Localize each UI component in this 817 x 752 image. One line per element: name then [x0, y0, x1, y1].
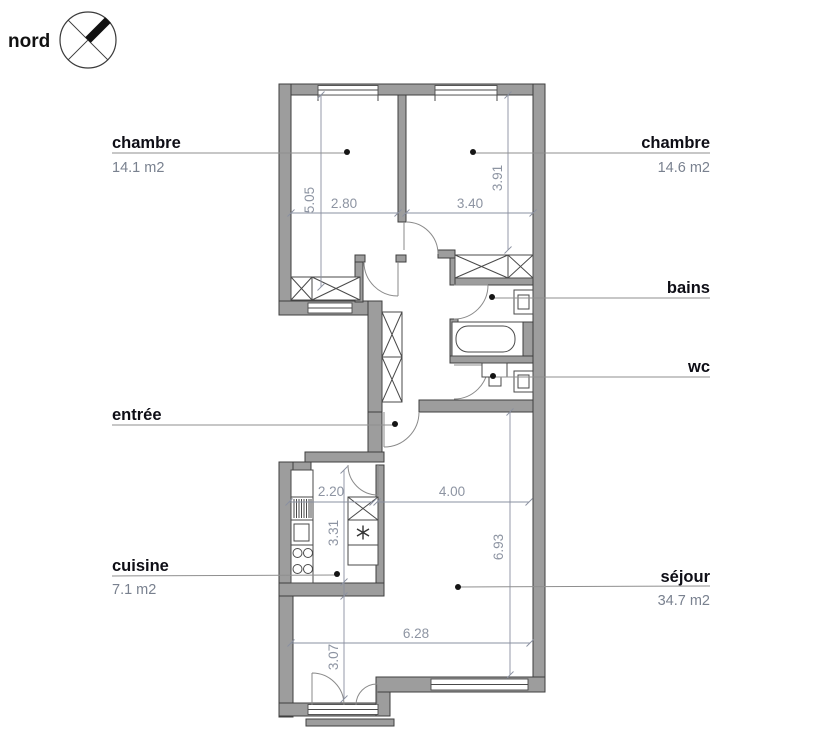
leader-dot-sejour: [455, 584, 461, 590]
door-chambre2: [404, 222, 438, 254]
room-area-cuisine: 7.1 m2: [112, 582, 156, 598]
wall-hall-west: [368, 301, 382, 412]
wall-bains-north: [455, 278, 533, 285]
wall-cuisine-south: [279, 583, 384, 596]
window-jamb-ticks: [318, 95, 497, 101]
wall-chambre1-door-jamb-east: [396, 255, 406, 262]
leader-dot-chambre2: [470, 149, 476, 155]
wardrobe-chambre2: [455, 255, 533, 278]
leader-dot-wc: [490, 373, 496, 379]
dim-cuisine-height: 3.31: [326, 520, 341, 546]
compass-north-wedge-icon: [85, 17, 111, 43]
room-name-chambre1: chambre: [112, 134, 181, 152]
door-cuisine: [348, 465, 378, 495]
wall-right: [533, 84, 545, 692]
leader-dot-entree: [392, 421, 398, 427]
dim-chambre1-height: 5.05: [302, 187, 317, 213]
door-balcony-right: [356, 684, 377, 705]
wall-chambre1-door-jamb-west: [355, 255, 365, 262]
room-name-wc: wc: [687, 358, 710, 376]
leader-dot-cuisine: [334, 571, 340, 577]
bains-sink: [514, 290, 533, 314]
dim-sejour-balcony-height: 3.07: [326, 644, 341, 670]
room-area-chambre1: 14.1 m2: [112, 160, 164, 176]
leader-sejour: [458, 586, 710, 587]
dim-chambre1-width: 2.80: [331, 196, 357, 211]
room-name-entree: entrée: [112, 406, 162, 424]
wall-left-upper: [279, 84, 291, 313]
wall-cuisine-north-upper: [305, 452, 384, 462]
room-area-chambre2: 14.6 m2: [658, 160, 710, 176]
wc-sink: [514, 371, 533, 392]
dim-entree-sejour-width: 4.00: [439, 484, 465, 499]
label-sejour: séjour 34.7 m2: [455, 568, 711, 609]
door-chambre1: [364, 262, 398, 296]
leader-dot-bains: [489, 294, 495, 300]
dim-chambre2-height: 3.91: [490, 165, 505, 191]
room-area-sejour: 34.7 m2: [658, 593, 710, 609]
dim-sejour-width: 6.28: [403, 626, 429, 641]
dim-cuisine-width: 2.20: [318, 484, 344, 499]
dimension-lines: 5.05 2.80 3.40 3.91 2.20 3.31 4.00 6.93 …: [286, 92, 537, 703]
dim-sejour-height: 6.93: [491, 534, 506, 560]
toilet-bowl: [489, 377, 501, 386]
label-entree: entrée: [112, 406, 398, 427]
label-chambre2: chambre 14.6 m2: [470, 134, 710, 176]
compass-label: nord: [8, 31, 50, 52]
floor-plan-svg: nord: [0, 0, 817, 752]
room-name-sejour: séjour: [660, 568, 710, 586]
wall-wc-south: [419, 400, 533, 412]
room-name-chambre2: chambre: [641, 134, 710, 152]
floor-plan-page: nord: [0, 0, 817, 752]
room-name-bains: bains: [667, 279, 710, 297]
balcony-slab: [306, 719, 394, 726]
door-balcony-left: [312, 673, 344, 705]
dim-chambre2-width: 3.40: [457, 196, 483, 211]
leader-dot-chambre1: [344, 149, 350, 155]
duct-block: [523, 322, 533, 356]
wall-bains-wc-divider: [450, 356, 533, 363]
room-labels: chambre 14.1 m2 chambre 14.6 m2 bains wc…: [112, 134, 711, 609]
door-entree: [384, 412, 419, 447]
door-bains: [454, 285, 488, 319]
wall-chambre2-south: [438, 250, 455, 258]
wall-entree-west: [368, 412, 382, 454]
compass: nord: [8, 12, 116, 68]
room-name-cuisine: cuisine: [112, 557, 169, 575]
wall-bedroom-divider: [398, 95, 406, 222]
label-chambre1: chambre 14.1 m2: [112, 134, 350, 176]
